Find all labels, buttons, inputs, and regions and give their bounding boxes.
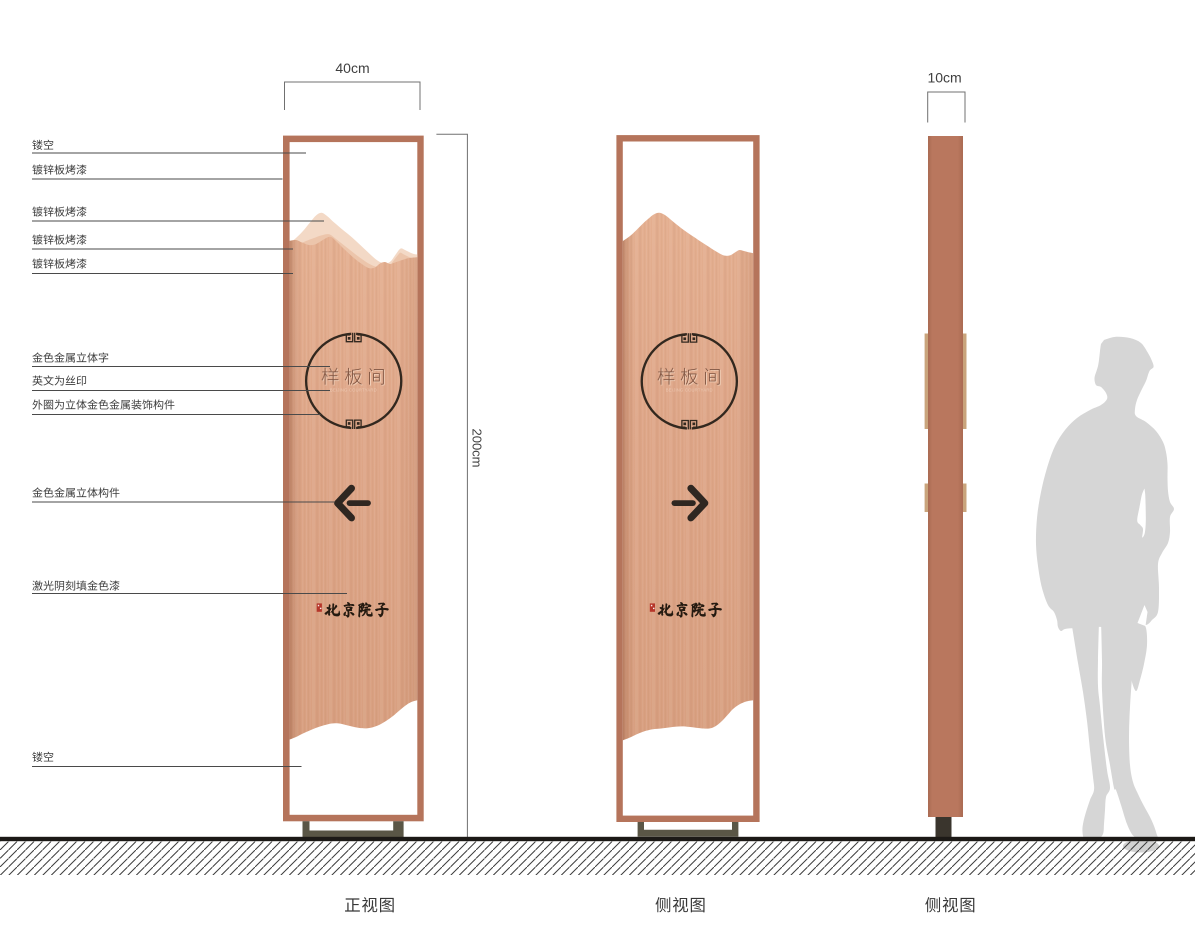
- svg-text:200cm: 200cm: [470, 428, 485, 467]
- svg-text:10cm: 10cm: [927, 70, 961, 86]
- svg-text:BEIJING COURTYARD: BEIJING COURTYARD: [666, 388, 713, 393]
- svg-text:BEIJING COURTYARD: BEIJING COURTYARD: [330, 388, 377, 393]
- svg-text:40cm: 40cm: [335, 60, 369, 76]
